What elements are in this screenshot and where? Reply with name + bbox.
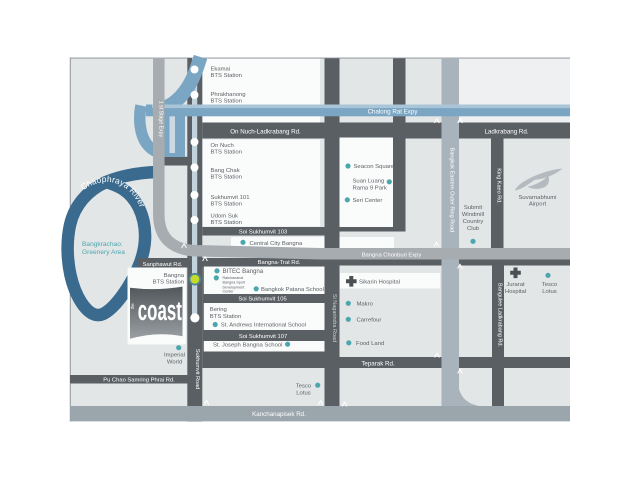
svg-text:Hospital: Hospital <box>505 289 526 295</box>
svg-text:Tesco: Tesco <box>296 384 312 390</box>
svg-text:Bangulee Ladkrabang Rd.: Bangulee Ladkrabang Rd. <box>497 283 503 347</box>
svg-text:King Kaeo Rd.: King Kaeo Rd. <box>496 168 502 204</box>
svg-text:Seri Center: Seri Center <box>353 198 383 204</box>
svg-text:St. Joseph Bangna School: St. Joseph Bangna School <box>213 342 282 348</box>
svg-text:the: the <box>130 303 135 309</box>
svg-text:On Nuch-Ladkrabang Rd.: On Nuch-Ladkrabang Rd. <box>230 128 301 135</box>
svg-text:BITEC Bangna: BITEC Bangna <box>223 268 264 275</box>
svg-text:Bangkok Eastern Outer Ring Roa: Bangkok Eastern Outer Ring Road <box>449 148 455 233</box>
svg-text:Center: Center <box>223 290 235 294</box>
svg-text:Submit: Submit <box>464 205 483 211</box>
svg-text:St. Andrews International Scho: St. Andrews International School <box>221 323 306 329</box>
svg-text:Seacon Square: Seacon Square <box>354 164 395 170</box>
svg-text:Suan Luang: Suan Luang <box>353 179 385 185</box>
svg-text:Phrakhanong: Phrakhanong <box>211 92 246 98</box>
svg-text:Sukhumvit 101: Sukhumvit 101 <box>211 195 250 201</box>
svg-text:Soi Sukhumvit 107: Soi Sukhumvit 107 <box>239 334 287 340</box>
svg-text:Jurarat: Jurarat <box>506 282 525 288</box>
svg-text:On Nuch: On Nuch <box>211 143 234 149</box>
svg-text:Bangkrachao:: Bangkrachao: <box>82 241 123 248</box>
svg-text:Rama 9 Park: Rama 9 Park <box>353 185 387 191</box>
svg-text:Bangna: Bangna <box>164 273 185 279</box>
svg-text:1 st Stage Expy: 1 st Stage Expy <box>157 101 163 138</box>
svg-text:Makro: Makro <box>357 302 374 308</box>
svg-text:Central City Bangna: Central City Bangna <box>250 241 303 247</box>
svg-text:Suvarnabhumi: Suvarnabhumi <box>519 195 557 201</box>
svg-text:Country: Country <box>463 219 484 225</box>
svg-text:Lotus: Lotus <box>542 289 556 295</box>
svg-text:Bang Chak: Bang Chak <box>211 168 240 174</box>
svg-text:Club: Club <box>467 226 480 232</box>
svg-text:BTS Station: BTS Station <box>210 314 241 320</box>
svg-text:Kanchanapisek Rd.: Kanchanapisek Rd. <box>252 411 306 418</box>
svg-text:Soi Sukhumvit 103: Soi Sukhumvit 103 <box>239 230 287 236</box>
svg-text:Airport: Airport <box>529 202 547 208</box>
svg-text:BTS Station: BTS Station <box>211 99 242 105</box>
svg-text:Bangkok Patana School: Bangkok Patana School <box>261 287 324 293</box>
svg-text:Ekamai: Ekamai <box>211 66 231 72</box>
svg-text:Si Nagarindra Road: Si Nagarindra Road <box>331 294 337 342</box>
svg-text:Lotus: Lotus <box>296 391 310 397</box>
svg-text:Imperial: Imperial <box>164 353 185 359</box>
svg-text:BTS Station: BTS Station <box>211 201 242 207</box>
svg-text:Chalong Rat Expy: Chalong Rat Expy <box>368 108 419 115</box>
svg-text:Bangna-Trat Rd.: Bangna-Trat Rd. <box>258 260 301 266</box>
svg-text:BTS Station: BTS Station <box>153 280 184 286</box>
svg-text:BTS Station: BTS Station <box>211 149 242 155</box>
svg-text:BTS Station: BTS Station <box>211 220 242 226</box>
svg-text:Pu Chao Samring Phrai Rd.: Pu Chao Samring Phrai Rd. <box>103 377 175 383</box>
svg-text:BTS Station: BTS Station <box>211 174 242 180</box>
svg-text:World: World <box>167 360 182 366</box>
svg-text:Ladkrabang Rd.: Ladkrabang Rd. <box>484 129 528 136</box>
svg-text:Ratchananai: Ratchananai <box>223 276 244 280</box>
svg-text:Bangna Chonburi Expy: Bangna Chonburi Expy <box>362 252 422 258</box>
svg-text:Greenery Area: Greenery Area <box>82 249 125 256</box>
svg-text:Windmill: Windmill <box>462 212 484 218</box>
svg-text:Carrefour: Carrefour <box>357 318 382 324</box>
svg-text:BTS Station: BTS Station <box>211 73 242 79</box>
svg-text:Sanphawut Rd.: Sanphawut Rd. <box>143 262 183 268</box>
svg-text:Tesco: Tesco <box>542 282 558 288</box>
svg-text:Sukhumvit Road: Sukhumvit Road <box>194 349 200 389</box>
svg-text:Bering: Bering <box>210 307 227 313</box>
svg-text:Soi Sukhumvit 105: Soi Sukhumvit 105 <box>238 297 286 303</box>
svg-text:Sikarin Hospital: Sikarin Hospital <box>359 280 400 286</box>
svg-text:Food Land: Food Land <box>356 341 384 347</box>
svg-text:Teparak Rd.: Teparak Rd. <box>361 360 395 367</box>
svg-text:Bangna Sport: Bangna Sport <box>223 281 246 285</box>
svg-text:Udom Suk: Udom Suk <box>211 214 239 220</box>
